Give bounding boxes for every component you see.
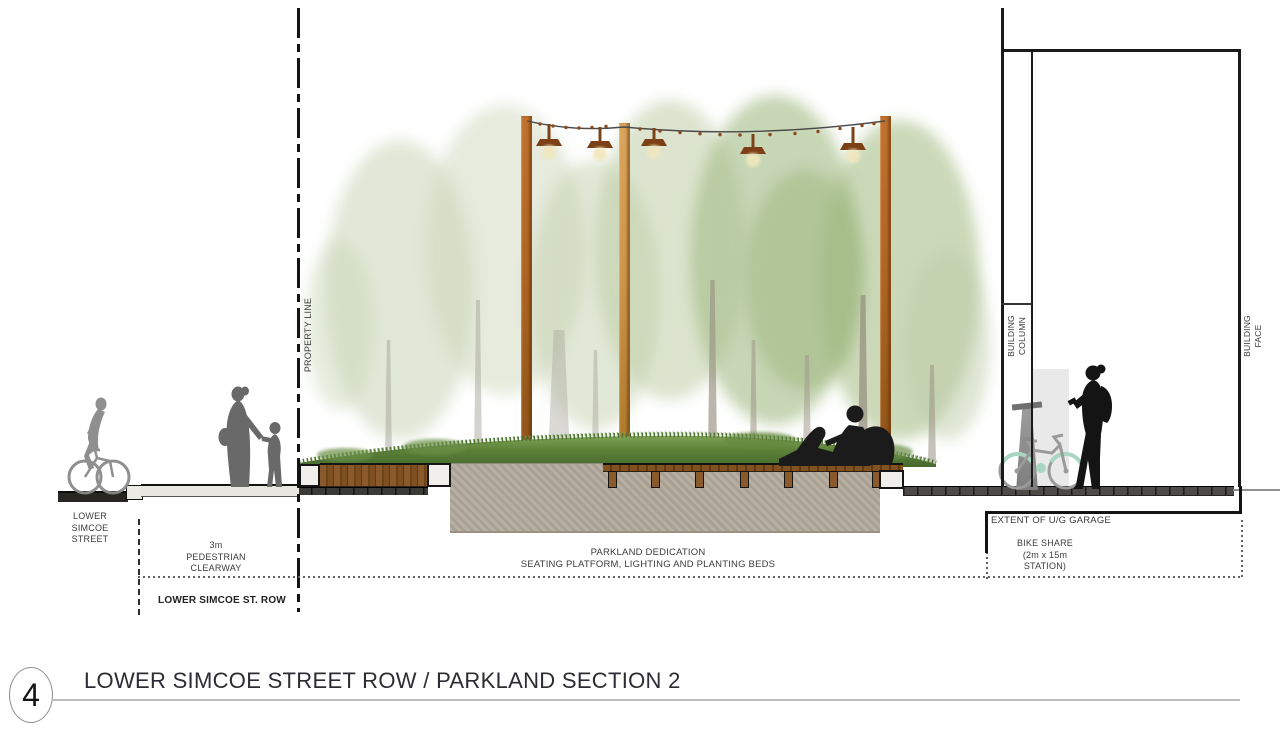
ug-garage-line-horizontal xyxy=(985,511,1242,514)
section-number-bubble: 4 xyxy=(9,667,53,723)
label-extent-ug-garage: EXTENT OF U/G GARAGE xyxy=(991,515,1151,527)
pedestrians-silhouette xyxy=(219,387,283,488)
label-lower-simcoe-street: LOWER SIMCOE STREET xyxy=(58,511,122,546)
title-underline xyxy=(53,699,1240,701)
label-building-column: BUILDING COLUMN xyxy=(1006,306,1028,366)
cyclist-silhouette xyxy=(69,398,129,494)
section-number: 4 xyxy=(22,677,40,714)
section-title: LOWER SIMCOE STREET ROW / PARKLAND SECTI… xyxy=(84,668,681,694)
label-bike-share: BIKE SHARE (2m x 15m STATION) xyxy=(993,538,1097,573)
dotted-tick-building xyxy=(1241,520,1243,580)
standing-person-silhouette xyxy=(1068,365,1112,490)
building-column-tick xyxy=(1001,303,1032,305)
dotted-tick-garage xyxy=(986,552,988,580)
bike-share-bicycle xyxy=(1000,435,1083,488)
building-roof-line xyxy=(1001,49,1241,52)
ug-garage-line-vertical-right xyxy=(1239,486,1242,514)
label-building-face: BUILDING FACE xyxy=(1242,306,1264,366)
label-pedestrian-clearway: 3m PEDESTRIAN CLEARWAY xyxy=(160,540,272,575)
property-line-dashed xyxy=(297,8,300,612)
building-grid-line xyxy=(1001,8,1004,487)
label-property-line: PROPERTY LINE xyxy=(303,287,317,383)
section-drawing-canvas: LOWER SIMCOE STREET 3m PEDESTRIAN CLEARW… xyxy=(0,0,1280,735)
row-extent-dotted xyxy=(138,576,1243,578)
label-lower-simcoe-row: LOWER SIMCOE ST. ROW xyxy=(140,594,304,607)
building-face-line xyxy=(1238,49,1241,487)
label-parkland-dedication: PARKLAND DEDICATION SEATING PLATFORM, LI… xyxy=(420,547,876,572)
ug-garage-line-vertical-left xyxy=(985,511,988,553)
building-column-line xyxy=(1031,50,1033,487)
lounging-person-silhouette xyxy=(779,406,894,467)
figures-layer xyxy=(0,0,1280,735)
